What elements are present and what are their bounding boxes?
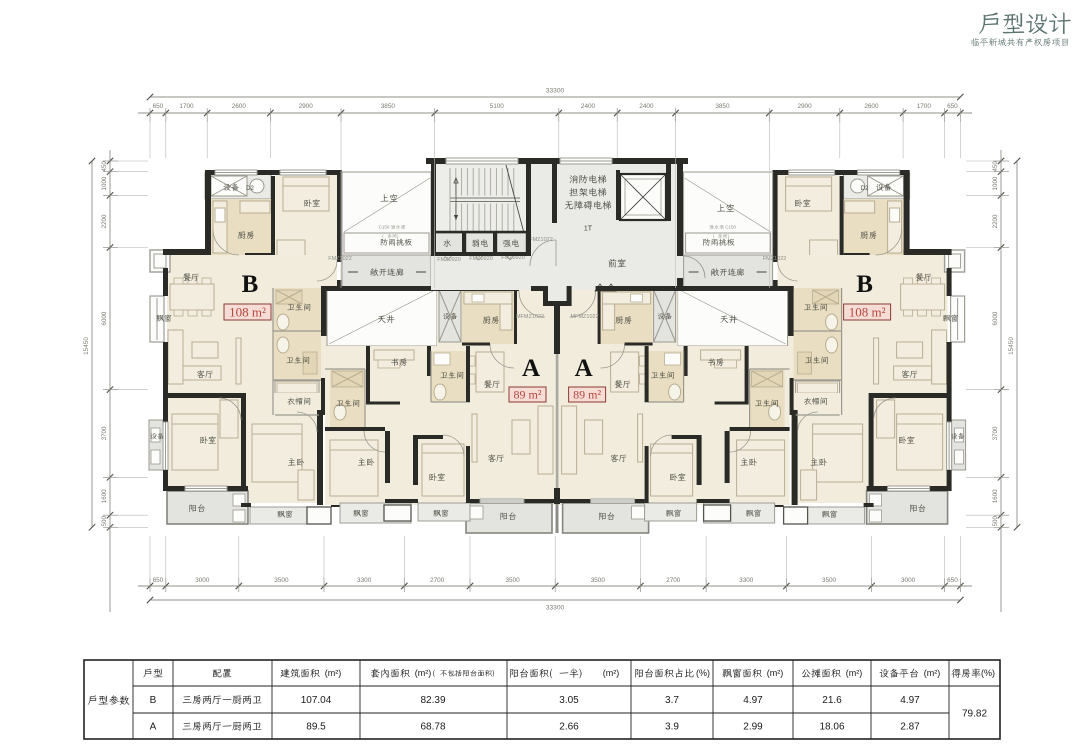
svg-text:650: 650 (947, 577, 958, 584)
svg-text:500: 500 (101, 516, 108, 527)
svg-text:(m²): (m²) (846, 668, 863, 678)
svg-text:2700: 2700 (666, 577, 681, 584)
svg-text:21.6: 21.6 (822, 695, 842, 706)
svg-text:MFMZ1022: MFMZ1022 (571, 314, 599, 320)
svg-text:107.04: 107.04 (301, 695, 332, 706)
svg-text:MFMZ1022: MFMZ1022 (516, 314, 544, 320)
svg-text:3500: 3500 (591, 577, 606, 584)
svg-text:89 m²: 89 m² (514, 388, 542, 402)
svg-text:3000: 3000 (901, 577, 916, 584)
svg-text:650: 650 (153, 103, 164, 110)
svg-text:3850: 3850 (715, 103, 730, 110)
svg-text:2.87: 2.87 (900, 722, 920, 733)
svg-text:79.82: 79.82 (962, 709, 987, 720)
svg-text:68.78: 68.78 (420, 722, 445, 733)
svg-text:D2: D2 (246, 186, 254, 192)
svg-text:FMZ0920: FMZ0920 (437, 257, 461, 263)
svg-text:2900: 2900 (797, 103, 812, 110)
svg-text:3500: 3500 (274, 577, 289, 584)
svg-text:18.06: 18.06 (819, 722, 844, 733)
svg-text:(m²): (m²) (924, 668, 941, 678)
svg-text:6000: 6000 (101, 311, 108, 325)
svg-text:(%): (%) (981, 668, 995, 678)
svg-text:2900: 2900 (299, 103, 314, 110)
svg-text:D2: D2 (861, 186, 869, 192)
svg-text:B: B (150, 695, 157, 706)
svg-text:2400: 2400 (639, 103, 654, 110)
svg-text:650: 650 (153, 577, 164, 584)
svg-text:(m²): (m²) (325, 668, 342, 678)
svg-text:15450: 15450 (83, 337, 90, 355)
svg-text:650: 650 (947, 103, 958, 110)
svg-text:2700: 2700 (430, 577, 445, 584)
svg-text:15450: 15450 (1008, 337, 1015, 355)
svg-text:2400: 2400 (581, 103, 596, 110)
svg-text:(m²): (m²) (603, 668, 620, 678)
svg-text:4.97: 4.97 (900, 695, 920, 706)
svg-text:1000: 1000 (992, 176, 999, 190)
svg-text:82.39: 82.39 (420, 695, 445, 706)
svg-text:3.7: 3.7 (665, 695, 679, 706)
svg-text:500: 500 (992, 516, 999, 527)
svg-text:1700: 1700 (917, 103, 932, 110)
svg-text:6000: 6000 (992, 311, 999, 325)
svg-text:FMZ1022: FMZ1022 (529, 237, 553, 243)
svg-text:2600: 2600 (232, 103, 247, 110)
svg-text:5100: 5100 (490, 103, 505, 110)
svg-text:1600: 1600 (992, 489, 999, 503)
svg-text:(m²): (m²) (767, 668, 784, 678)
svg-text:(%): (%) (696, 668, 710, 678)
svg-text:89 m²: 89 m² (573, 388, 601, 402)
svg-text:2600: 2600 (864, 103, 879, 110)
svg-text:3850: 3850 (381, 103, 396, 110)
svg-text:A: A (150, 722, 157, 733)
svg-text:4.97: 4.97 (743, 695, 763, 706)
svg-text:3700: 3700 (101, 426, 108, 440)
svg-text:450: 450 (992, 161, 999, 172)
svg-text:FMZ1022: FMZ1022 (328, 256, 352, 262)
svg-text:C150: C150 (379, 225, 390, 230)
svg-text:2.66: 2.66 (559, 722, 579, 733)
svg-text:3300: 3300 (739, 577, 754, 584)
svg-text:2200: 2200 (101, 214, 108, 228)
svg-text:A: A (522, 355, 540, 382)
svg-text:89.5: 89.5 (306, 722, 326, 733)
svg-text:450: 450 (101, 161, 108, 172)
svg-text:2.99: 2.99 (743, 722, 763, 733)
svg-text:A: A (575, 355, 593, 382)
svg-text:(m²): (m²) (415, 668, 432, 678)
svg-text:3700: 3700 (992, 426, 999, 440)
svg-text:C150: C150 (725, 225, 736, 230)
svg-text:1600: 1600 (101, 489, 108, 503)
svg-text:B: B (856, 271, 873, 298)
svg-text:3500: 3500 (822, 577, 837, 584)
svg-text:33300: 33300 (546, 87, 565, 94)
svg-text:2200: 2200 (992, 214, 999, 228)
svg-text:3000: 3000 (195, 577, 210, 584)
svg-text:3300: 3300 (357, 577, 372, 584)
svg-text:1T: 1T (584, 225, 593, 232)
svg-text:FMZ0920: FMZ0920 (469, 256, 493, 262)
svg-text:108 m²: 108 m² (229, 305, 266, 320)
svg-text:B: B (242, 271, 259, 298)
svg-text:FMZ1022: FMZ1022 (763, 256, 787, 262)
svg-text:3.05: 3.05 (559, 695, 579, 706)
svg-text:108 m²: 108 m² (849, 305, 886, 320)
svg-text:3.9: 3.9 (665, 722, 679, 733)
svg-text:1000: 1000 (101, 176, 108, 190)
svg-text:3500: 3500 (505, 577, 520, 584)
svg-text:33300: 33300 (546, 604, 565, 611)
svg-text:1700: 1700 (179, 103, 194, 110)
